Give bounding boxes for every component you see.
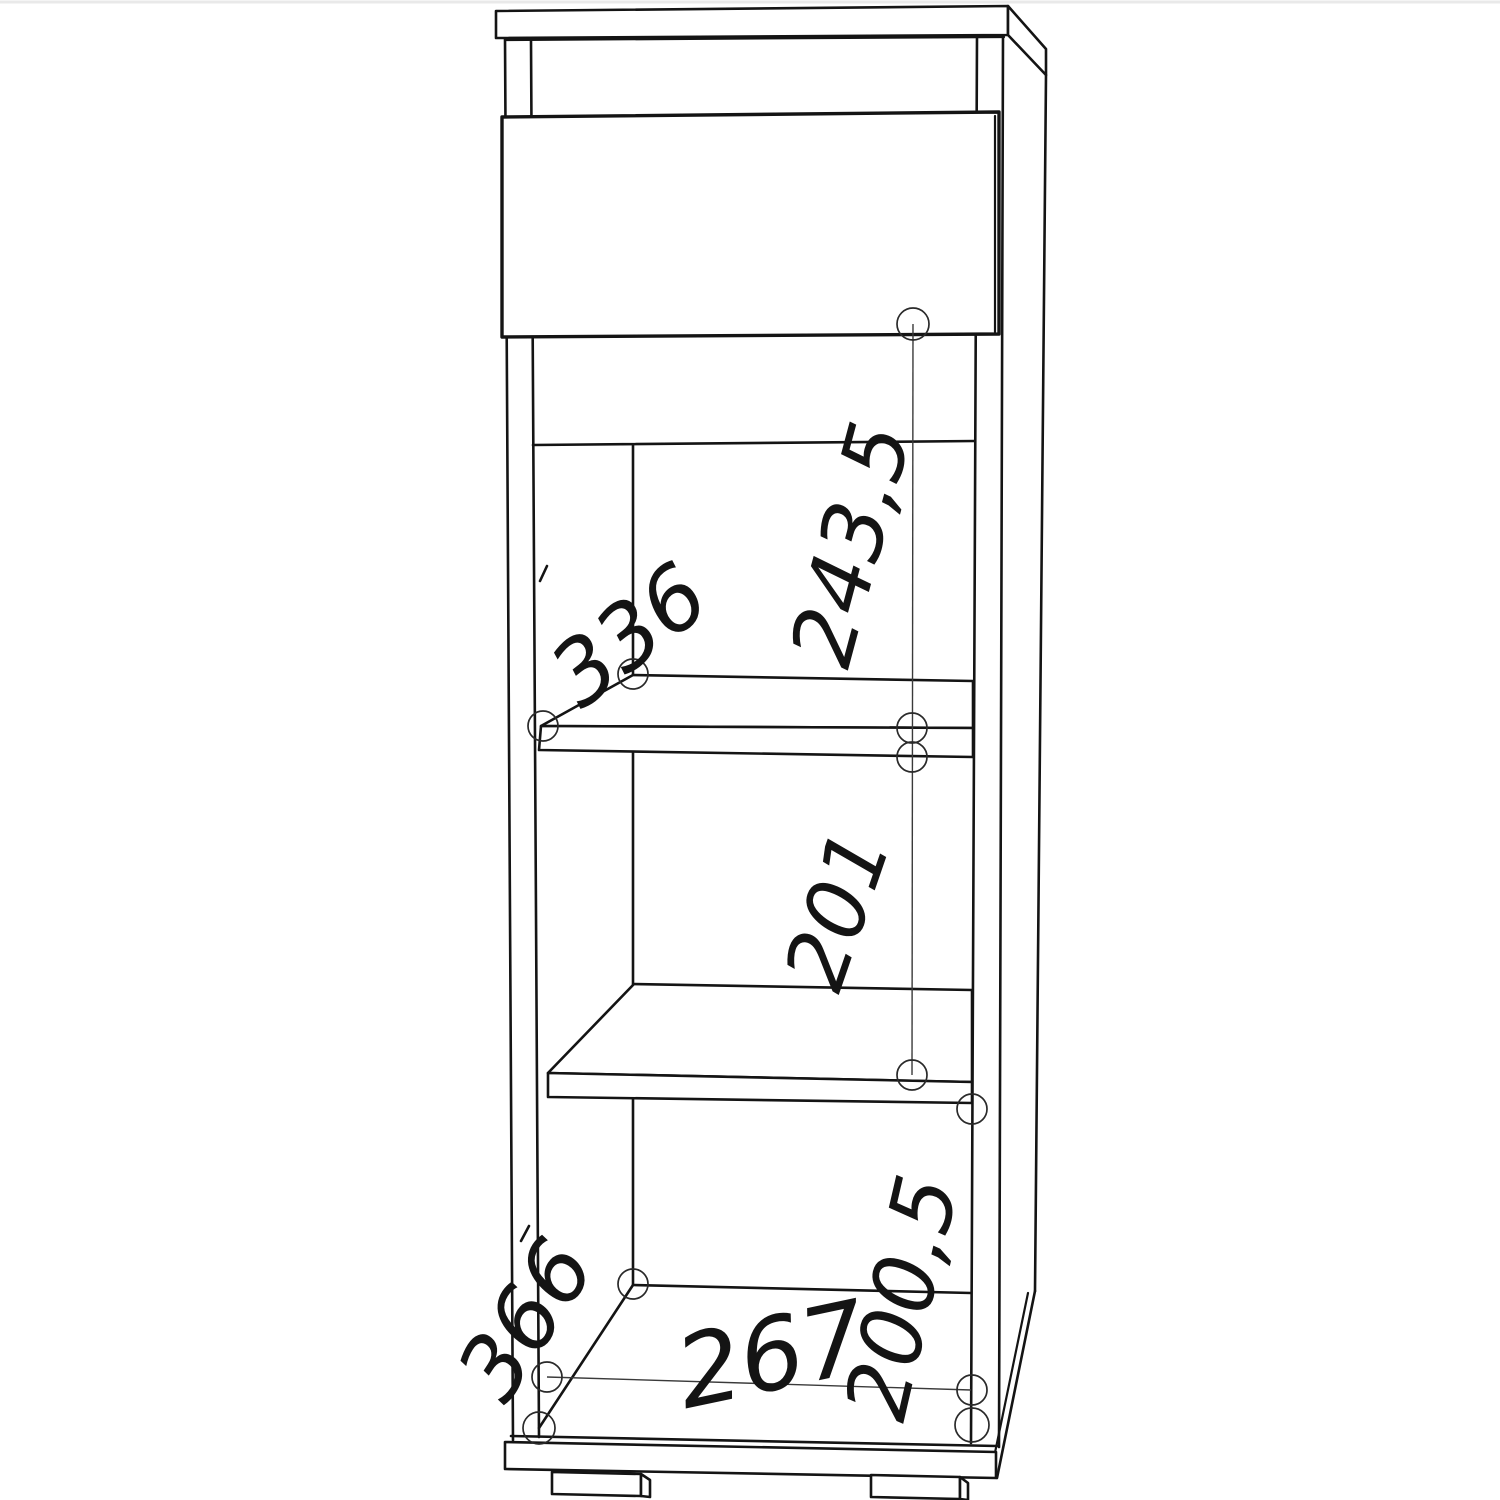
foot-left-side-face [641, 1474, 650, 1497]
foot-left [552, 1472, 650, 1497]
shelf-1-front-face [539, 726, 973, 757]
dimension-label-243-5: 243,5 [771, 413, 931, 677]
foot-right-side-face [960, 1477, 968, 1500]
cabinet-drawing: 336 243,5 201 200,5 267 366 [0, 0, 1500, 1500]
dimension-label-366: 366 [437, 1221, 615, 1418]
technical-drawing-page: 336 243,5 201 200,5 267 366 [0, 0, 1500, 1500]
drawer [502, 112, 999, 337]
side-bottom-edge-outer [997, 1291, 1035, 1478]
foot-right-front-face [871, 1475, 960, 1499]
foot-right [871, 1475, 968, 1500]
tick-above-336 [540, 566, 547, 581]
foot-left-front-face [552, 1472, 641, 1496]
shelf-2-top-face [548, 984, 972, 1082]
dimension-labels: 336 243,5 201 200,5 267 366 [437, 413, 979, 1432]
shelf-2 [548, 984, 972, 1103]
base [505, 1436, 997, 1500]
top-panel-front-face [496, 6, 1008, 38]
dimension-label-201: 201 [765, 818, 910, 1002]
drawer-front-panel [502, 112, 999, 337]
top-panel-side-face [1008, 6, 1046, 75]
right-back-edge [1035, 75, 1046, 1291]
